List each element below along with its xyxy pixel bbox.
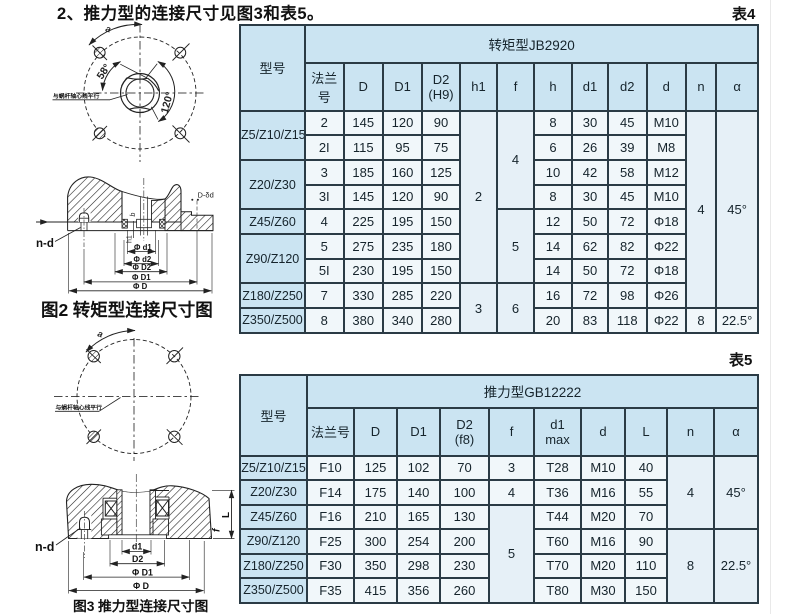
svg-text:n-d: n-d — [35, 540, 54, 554]
svg-text:n-d: n-d — [36, 238, 54, 250]
svg-text:D-δd: D-δd — [198, 191, 214, 200]
svg-text:Φ d1: Φ d1 — [134, 243, 152, 252]
svg-text:D2: D2 — [132, 554, 143, 564]
svg-text:a: a — [96, 328, 104, 339]
svg-text:d1: d1 — [132, 542, 142, 552]
svg-text:与蜗杆轴心线平行: 与蜗杆轴心线平行 — [56, 404, 103, 412]
svg-text:f: f — [212, 527, 223, 532]
svg-text:Φ D: Φ D — [133, 581, 149, 591]
svg-text:Φ D2: Φ D2 — [133, 263, 152, 272]
svg-text:与蜗杆轴心线平行: 与蜗杆轴心线平行 — [53, 92, 100, 100]
svg-text:120°: 120° — [159, 91, 176, 115]
svg-text:L: L — [221, 512, 232, 518]
svg-text:a: a — [104, 23, 112, 34]
svg-text:Φ D1: Φ D1 — [132, 567, 153, 577]
svg-text:Φ D1: Φ D1 — [132, 273, 151, 282]
svg-text:b: b — [130, 213, 137, 217]
svg-text:58°: 58° — [95, 62, 114, 82]
svg-text:Φ D: Φ D — [133, 282, 148, 291]
